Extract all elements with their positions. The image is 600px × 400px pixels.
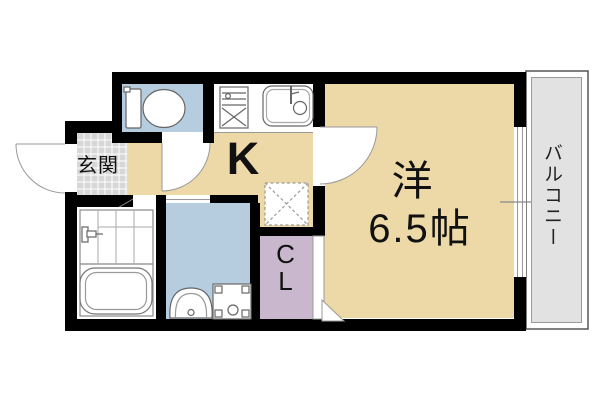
floor-plan-drawing — [0, 0, 600, 400]
wall-right-upper — [514, 72, 526, 127]
wall-toilet-bottom — [112, 132, 162, 143]
balcony-label: バルコニー — [541, 143, 561, 248]
refrigerator-space-icon — [265, 183, 308, 225]
bathroom-door-opening — [133, 195, 156, 207]
wall-washroom-top — [210, 195, 258, 203]
kitchen-label: K — [213, 135, 273, 182]
wall-left-lower — [65, 192, 77, 331]
wall-toilet-left — [112, 72, 122, 133]
entrance-swing-door-arc — [16, 144, 65, 193]
washbasin-icon — [170, 288, 212, 318]
stove-icon — [220, 87, 248, 128]
bathroom-unit — [77, 207, 156, 319]
wall-washroom-left — [156, 195, 166, 331]
wall-above-closet — [250, 227, 325, 236]
floor-plan: 玄関 K 洋 6.5帖 CL バルコニー — [0, 0, 600, 400]
wall-toilet-right — [203, 72, 214, 143]
room-name-label: 洋 — [362, 160, 462, 203]
wall-fridge-right — [313, 186, 325, 230]
wall-bottom — [65, 319, 526, 331]
wall-kitchen-room — [313, 72, 325, 127]
kitchen-sink-icon — [263, 86, 313, 126]
room-size-label: 6.5帖 — [335, 208, 505, 250]
toilet-opening — [162, 132, 203, 143]
entrance-label: 玄関 — [68, 156, 128, 177]
bathtub-icon — [80, 268, 152, 314]
washing-machine-pan-icon — [213, 284, 251, 319]
toilet-icon — [124, 87, 185, 128]
closet-label: CL — [272, 241, 299, 296]
